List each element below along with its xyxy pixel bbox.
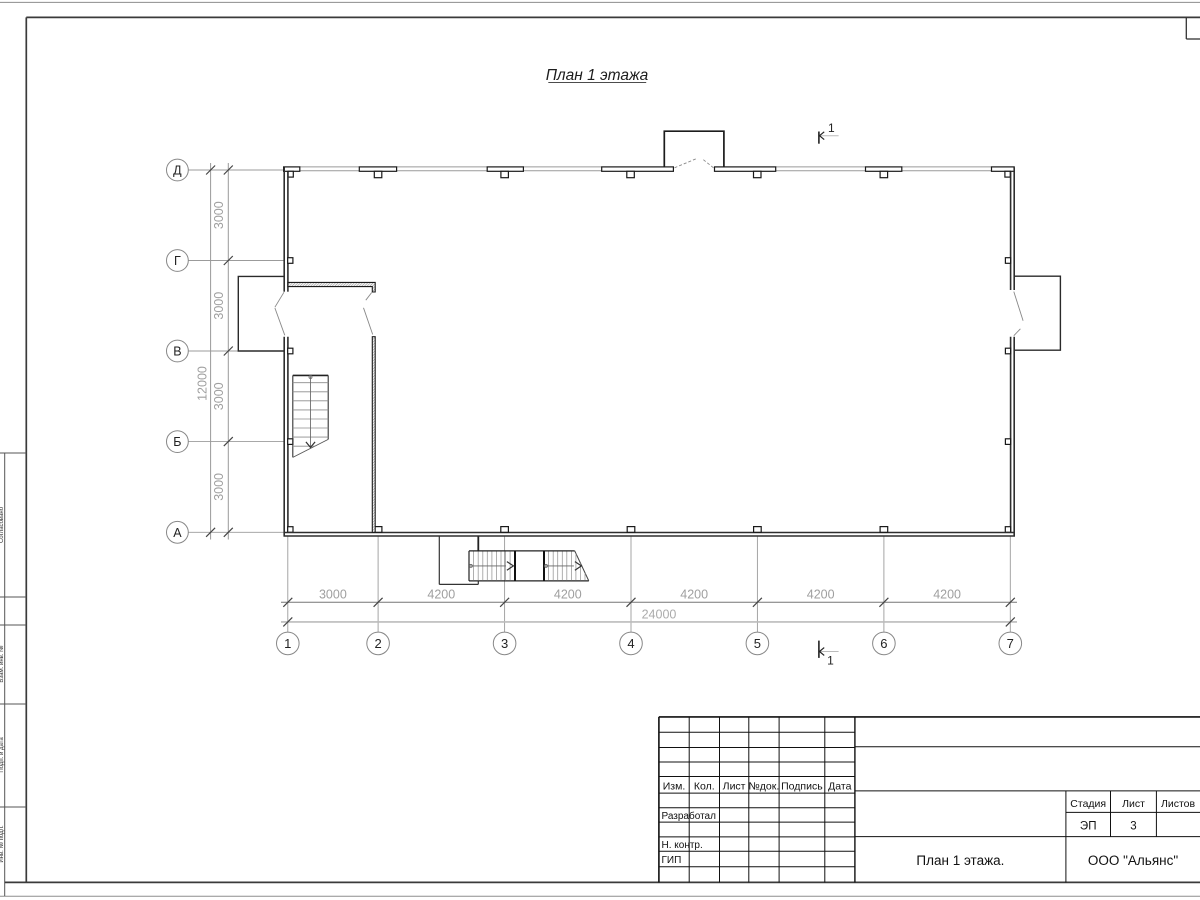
svg-text:12000: 12000: [196, 366, 210, 401]
svg-text:Н. контр.: Н. контр.: [662, 840, 703, 851]
svg-text:1: 1: [284, 636, 291, 651]
svg-text:Лист: Лист: [1122, 798, 1145, 810]
svg-text:24000: 24000: [642, 608, 677, 622]
svg-text:4200: 4200: [554, 587, 582, 601]
svg-text:1: 1: [827, 653, 834, 667]
svg-text:Согласованo: Согласованo: [0, 506, 5, 543]
svg-text:4200: 4200: [807, 587, 835, 601]
svg-text:4200: 4200: [427, 587, 455, 601]
svg-text:3000: 3000: [212, 382, 226, 410]
svg-text:ЭП: ЭП: [1080, 820, 1097, 832]
svg-text:3000: 3000: [319, 587, 347, 601]
svg-text:Подп. и дата: Подп. и дата: [0, 737, 5, 773]
svg-text:Изм.: Изм.: [663, 781, 686, 793]
svg-text:Взам. инв. №: Взам. инв. №: [0, 645, 5, 682]
svg-text:Листов: Листов: [1161, 798, 1196, 810]
svg-text:3000: 3000: [212, 201, 226, 229]
svg-text:Б: Б: [173, 435, 181, 449]
svg-text:Инв. № подл.: Инв. № подл.: [0, 825, 5, 863]
svg-text:ООО "Альянс": ООО "Альянс": [1088, 853, 1178, 868]
svg-text:Д: Д: [173, 164, 182, 178]
svg-text:ГИП: ГИП: [662, 855, 682, 866]
svg-text:Дата: Дата: [828, 781, 851, 793]
svg-text:Лист: Лист: [723, 781, 746, 793]
svg-text:№док.: №док.: [749, 781, 780, 793]
svg-text:3: 3: [501, 636, 508, 651]
svg-text:5: 5: [754, 636, 761, 651]
svg-text:4: 4: [627, 636, 634, 651]
svg-text:1: 1: [828, 121, 835, 135]
svg-text:В: В: [173, 345, 181, 359]
svg-text:План 1 этажа.: План 1 этажа.: [916, 853, 1004, 868]
svg-text:6: 6: [880, 636, 887, 651]
svg-text:3000: 3000: [212, 292, 226, 320]
svg-text:Кол.: Кол.: [694, 781, 715, 793]
svg-text:Разработал: Разработал: [662, 810, 717, 822]
svg-text:Стадия: Стадия: [1070, 798, 1106, 810]
svg-text:А: А: [173, 526, 182, 540]
svg-text:Г: Г: [174, 254, 181, 268]
svg-text:3: 3: [1130, 820, 1136, 832]
svg-text:4200: 4200: [680, 587, 708, 601]
svg-text:7: 7: [1007, 636, 1014, 651]
svg-text:3000: 3000: [212, 473, 226, 501]
svg-text:План 1 этажа: План 1 этажа: [546, 67, 649, 84]
svg-text:2: 2: [374, 636, 381, 651]
svg-text:4200: 4200: [933, 587, 961, 601]
svg-text:Подпись: Подпись: [781, 781, 823, 793]
